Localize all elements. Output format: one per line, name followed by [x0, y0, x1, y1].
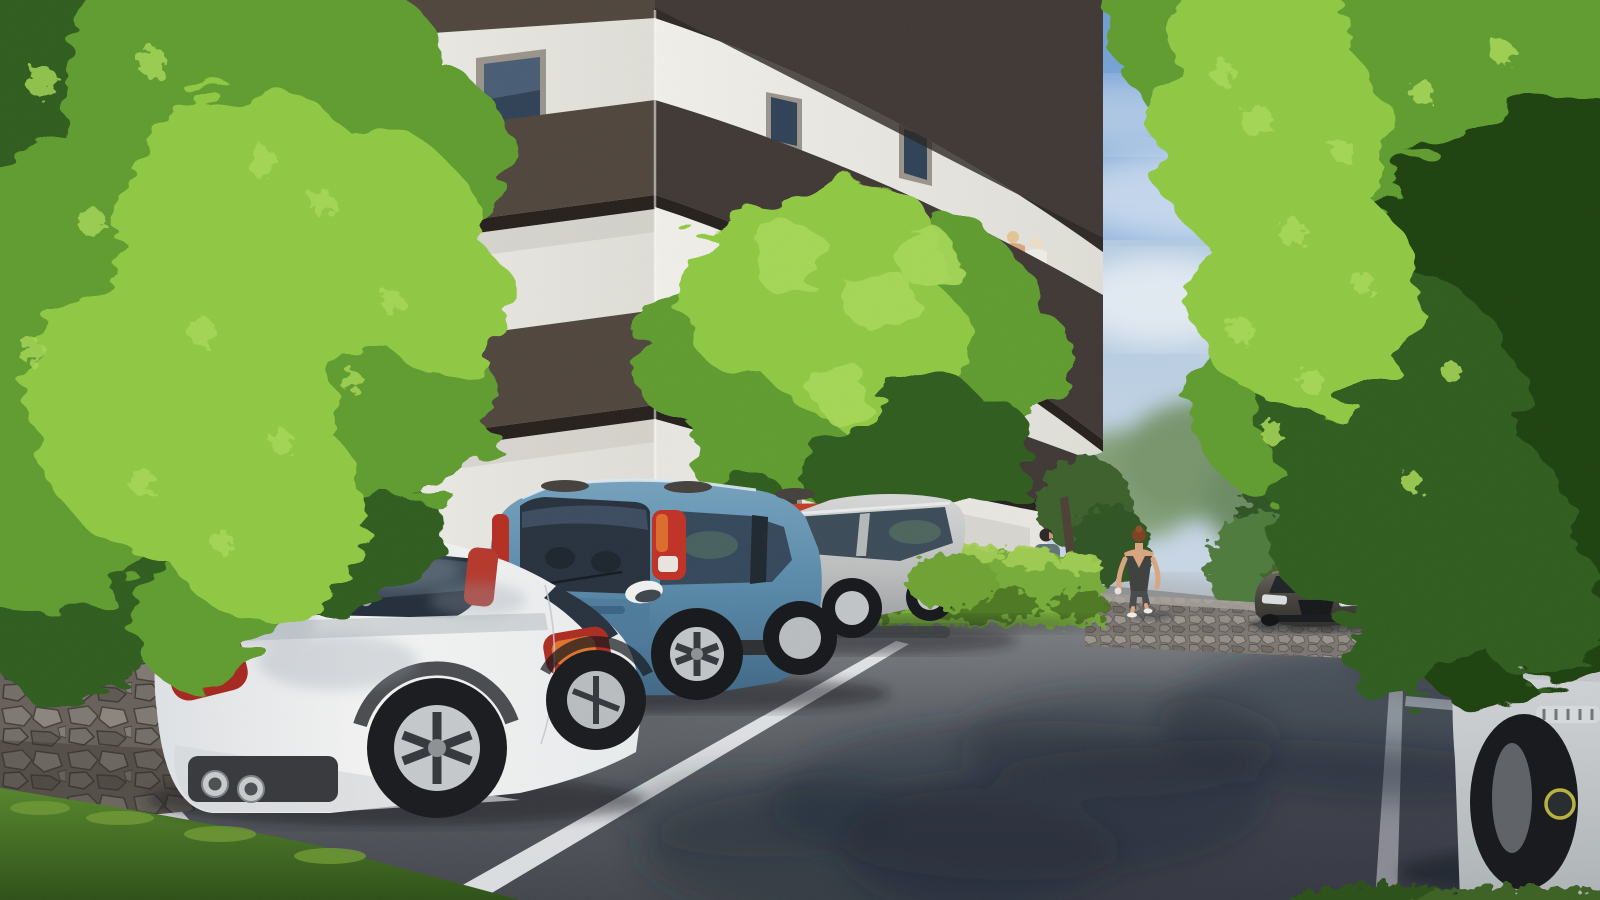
- render-canvas: [0, 0, 1600, 900]
- render-grain: [0, 0, 1600, 900]
- scene-svg: [0, 0, 1600, 900]
